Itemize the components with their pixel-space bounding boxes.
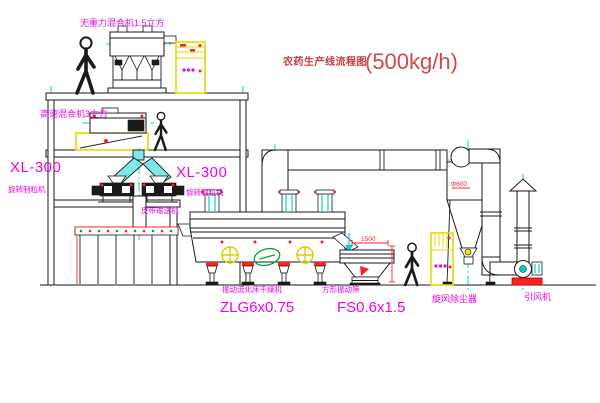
label-fan: 引风机 <box>524 291 551 302</box>
square-sieve: 1500 <box>333 233 395 285</box>
cabinet-button <box>187 68 190 71</box>
dryer-model: ZLG6x0.75 <box>220 299 294 316</box>
person-figure <box>155 112 166 150</box>
sieve-name: 方形振动筛 <box>322 284 360 294</box>
person-figure <box>405 243 418 285</box>
cabinet-button <box>443 264 446 267</box>
gravity-mixer <box>108 26 176 93</box>
belt-conveyor <box>75 224 196 284</box>
dryer-name: 振动流化床干燥机 <box>222 284 282 294</box>
flow-diagram: 1500 Φ600 <box>0 0 600 403</box>
granulator-left <box>92 176 136 202</box>
drawing-title: 农药生产线流程图 (500kg/h) <box>282 49 458 74</box>
cabinet-button <box>434 264 437 267</box>
title-prefix: 农药生产线流程图 <box>282 55 367 68</box>
exhaust-stack <box>510 179 536 263</box>
control-cabinet-top <box>176 42 205 93</box>
label-cyclone: 旋风除尘器 <box>432 293 477 304</box>
rotary-valve <box>465 249 471 255</box>
granulator-center-model: XL-300 <box>176 164 227 181</box>
granulator-left-model: XL-300 <box>10 159 61 176</box>
induced-draft-fan <box>512 261 542 286</box>
sieve-dimension: 1500 <box>361 236 376 243</box>
fan-base <box>512 278 542 285</box>
control-cabinet-bottom <box>431 233 453 285</box>
cyclone-dimension: Φ600 <box>451 181 467 188</box>
person-figure <box>77 37 94 93</box>
sieve-model: FS0.6x1.5 <box>337 299 405 316</box>
cabinet-button <box>182 68 185 71</box>
granulator-center-name: 旋转制粒机 <box>186 187 224 197</box>
label-high-speed-mixer: 高速混合机3立方 <box>40 108 108 119</box>
cabinet-button <box>191 68 194 71</box>
label-gravity-mixer: 无重力混合机1.5立方 <box>80 17 165 28</box>
label-belt-conveyor: 皮带输送机 <box>141 205 179 215</box>
title-capacity: (500kg/h) <box>365 49 458 74</box>
dryer-stub-duct <box>314 190 336 212</box>
cad-drawing: 1500 Φ600 <box>0 0 600 403</box>
cabinet-button <box>439 264 442 267</box>
granulator-left-name: 旋转制粒机 <box>8 184 46 194</box>
